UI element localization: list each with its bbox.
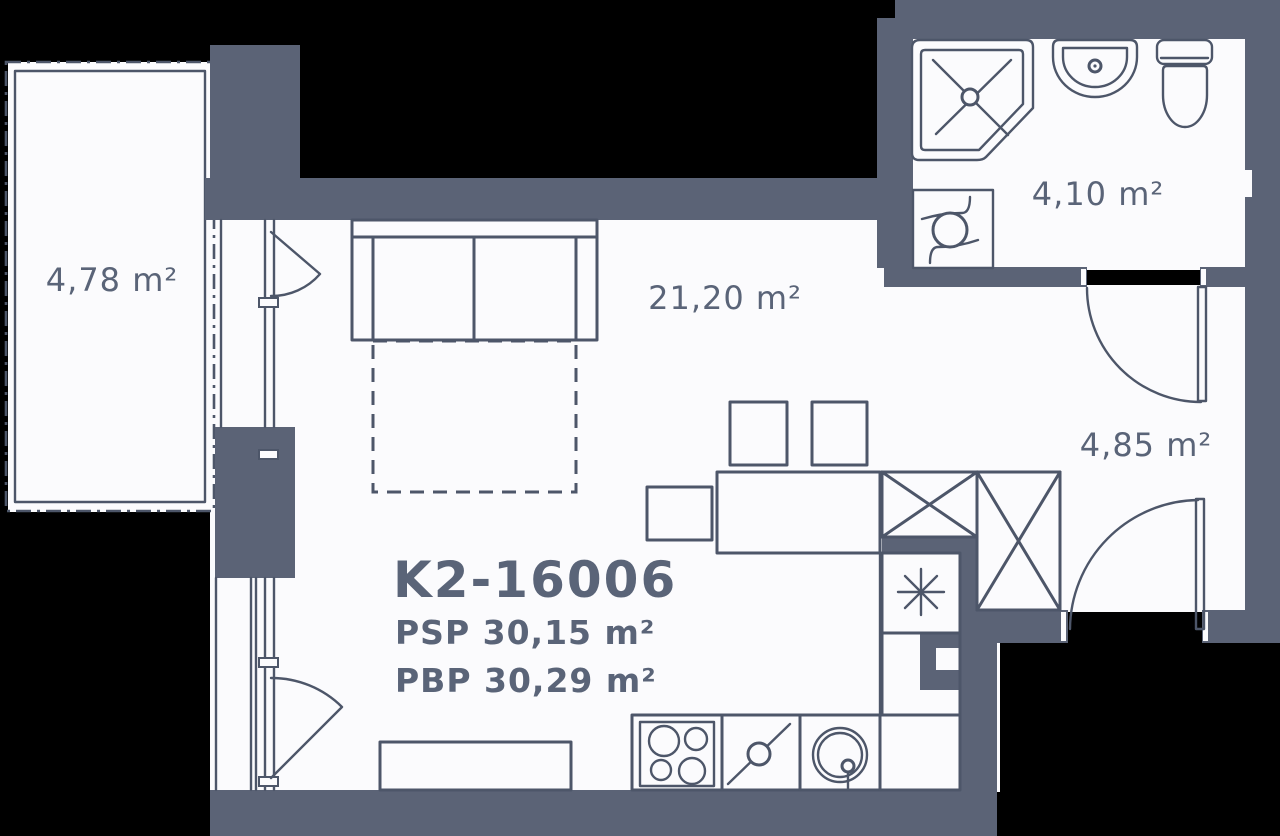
entry-door-jamb-slot-left xyxy=(1061,612,1066,641)
wall-bathroom-bottom-right xyxy=(1200,267,1245,287)
wall-bottom xyxy=(210,790,997,836)
unit-id-title: K2-16006 xyxy=(393,551,677,609)
bath-door-jamb-slot-left xyxy=(1081,269,1086,285)
window-mullion-tick xyxy=(259,298,278,307)
wall-bathroom-top xyxy=(895,0,1252,39)
floor-plan-page: 4,78 m² 21,20 m² 4,10 m² 4,85 m² K2-1600… xyxy=(0,0,1280,836)
wall-hall-bottom-left xyxy=(960,610,1068,643)
wall-bathroom-left xyxy=(877,18,913,268)
wall-hall-bottom-right xyxy=(1202,610,1245,643)
window-mullion-tick xyxy=(259,777,278,786)
asterisk-icon xyxy=(898,569,944,615)
wall-left-pillar xyxy=(215,427,295,578)
psp-area-label: PSP 30,15 m² xyxy=(395,613,655,652)
bath-door-jamb-slot-right xyxy=(1201,269,1206,285)
wall-right xyxy=(1245,0,1280,643)
wall-living-top xyxy=(205,178,897,220)
living-room-area-label: 21,20 m² xyxy=(648,279,802,317)
wall-chimney-block xyxy=(210,45,300,180)
duct-notch xyxy=(936,648,960,670)
window-mullion-tick xyxy=(259,450,278,459)
hallway-area-label: 4,85 m² xyxy=(1080,426,1212,464)
pbp-area-label: PBP 30,29 m² xyxy=(395,661,657,700)
floor-plan-svg: 4,78 m² 21,20 m² 4,10 m² 4,85 m² K2-1600… xyxy=(0,0,1280,836)
shaft-notch xyxy=(1232,170,1252,197)
window-mullion-tick xyxy=(259,658,278,667)
wall-bathroom-bottom-left xyxy=(884,267,1087,287)
wall-column-upper xyxy=(960,553,977,613)
bathroom-area-label: 4,10 m² xyxy=(1032,175,1164,213)
balcony-area-label: 4,78 m² xyxy=(46,261,178,299)
wall-band-under-wardrobe xyxy=(882,537,977,553)
